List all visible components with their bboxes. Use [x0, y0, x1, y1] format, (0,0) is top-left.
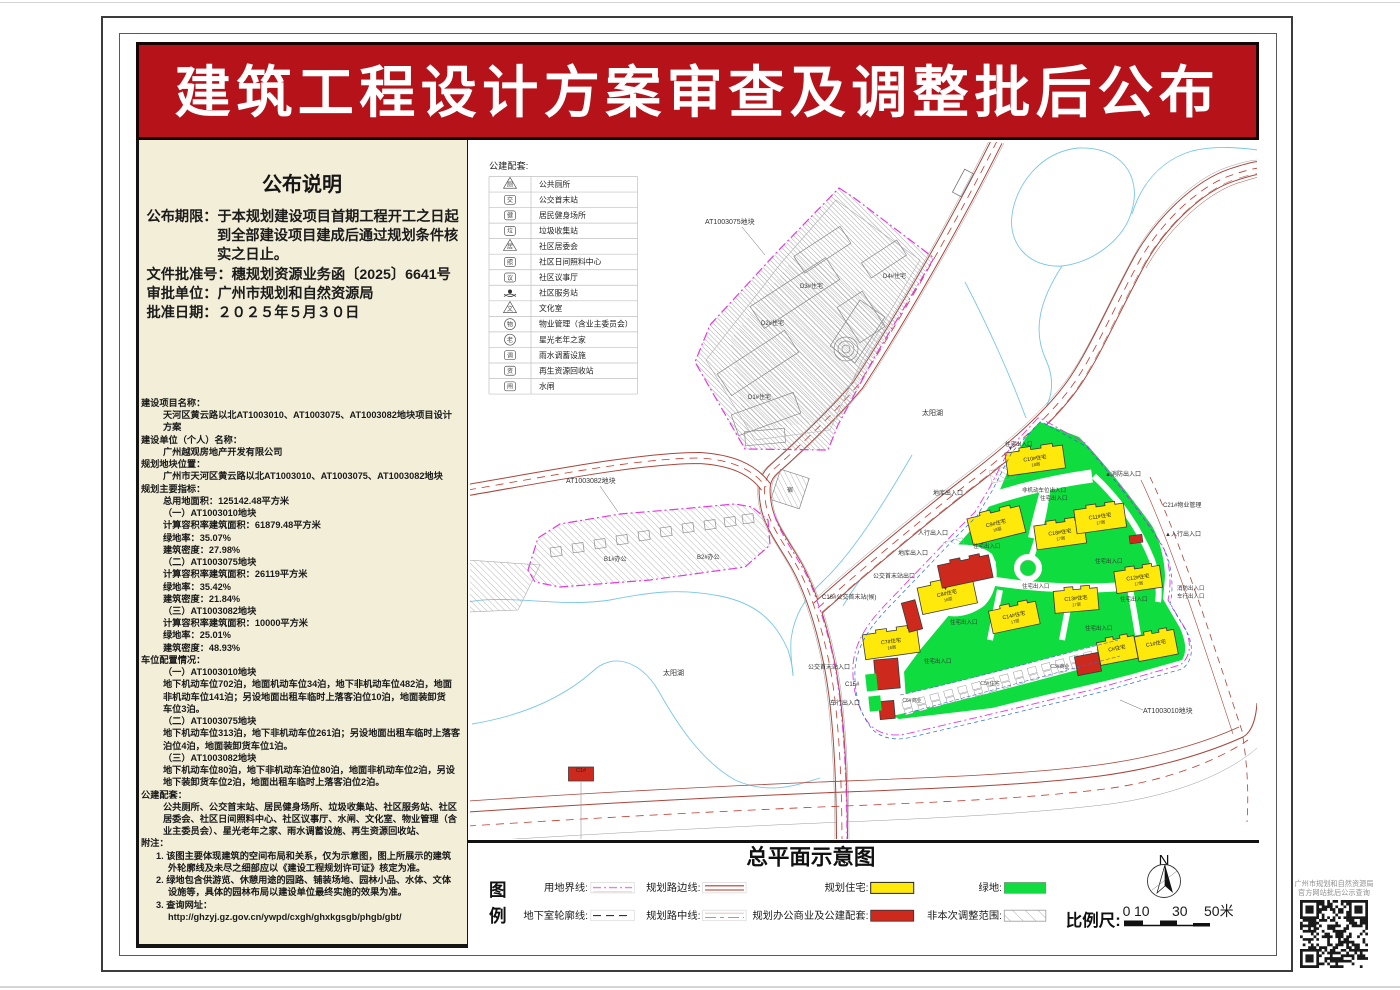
svg-text:住宅出入口: 住宅出入口	[950, 618, 978, 626]
svg-text:议: 议	[507, 274, 513, 282]
svg-text:雨水调蓄设施: 雨水调蓄设施	[539, 350, 586, 360]
svg-text:50米: 50米	[1204, 903, 1234, 919]
svg-text:B2#办公: B2#办公	[697, 553, 720, 561]
svg-text:D3#住宅: D3#住宅	[800, 282, 823, 290]
svg-text:D1#住宅: D1#住宅	[748, 393, 771, 401]
svg-text:比例尺:: 比例尺:	[1066, 910, 1121, 930]
svg-text:住宅出入口: 住宅出入口	[1120, 595, 1148, 603]
svg-text:非本次调整范围:: 非本次调整范围:	[927, 909, 1002, 922]
svg-text:垃圾收集站: 垃圾收集站	[539, 225, 578, 235]
svg-text:居民健身场所: 居民健身场所	[539, 210, 586, 220]
svg-text:AT1003082地块: AT1003082地块	[566, 476, 616, 485]
svg-text:住宅出入口: 住宅出入口	[1095, 557, 1123, 565]
svg-text:AT1003075地块: AT1003075地块	[705, 217, 755, 226]
svg-text:用地界线:: 用地界线:	[544, 881, 588, 894]
svg-text:10: 10	[1134, 903, 1150, 919]
svg-text:照: 照	[507, 259, 513, 266]
svg-text:规划路中线:: 规划路中线:	[646, 909, 700, 922]
svg-text:文: 文	[507, 305, 513, 313]
svg-text:社区居委会: 社区居委会	[539, 241, 578, 251]
svg-text:例: 例	[489, 906, 507, 926]
svg-text:公交首末站入口: 公交首末站入口	[808, 663, 850, 671]
svg-text:C15#: C15#	[845, 682, 860, 688]
svg-text:C5#住宅: C5#住宅	[980, 680, 999, 687]
svg-text:总平面示意图: 总平面示意图	[746, 845, 875, 870]
svg-text:D4#住宅: D4#住宅	[883, 272, 906, 280]
svg-text:车行出入口: 车行出入口	[1177, 592, 1205, 600]
svg-text:规划路边线:: 规划路边线:	[646, 881, 700, 894]
svg-text:B1#办公: B1#办公	[604, 555, 627, 563]
svg-text:再生资源回收站: 再生资源回收站	[539, 365, 594, 375]
svg-text:厕: 厕	[507, 182, 513, 189]
svg-text:▼: ▼	[1008, 446, 1013, 452]
svg-text:消防出入口: 消防出入口	[1177, 584, 1205, 592]
svg-text:图: 图	[489, 880, 507, 900]
svg-text:物: 物	[507, 320, 513, 328]
svg-text:AT1003010地块: AT1003010地块	[1143, 706, 1193, 715]
svg-text:公共厕所: 公共厕所	[539, 179, 570, 189]
svg-text:文化室: 文化室	[539, 303, 563, 313]
svg-text:C3#商业: C3#商业	[1050, 663, 1069, 670]
svg-text:N: N	[1159, 852, 1170, 869]
svg-text:闸: 闸	[507, 383, 513, 391]
svg-text:▼: ▼	[943, 586, 948, 592]
svg-text:C16#公交首末站(候): C16#公交首末站(候)	[822, 593, 876, 601]
svg-text:社区服务站: 社区服务站	[539, 288, 578, 298]
svg-text:0: 0	[1123, 903, 1131, 919]
svg-text:地下室轮廓线:: 地下室轮廓线:	[523, 909, 588, 922]
svg-text:健: 健	[507, 212, 513, 220]
svg-text:老: 老	[507, 336, 513, 344]
svg-text:规划办公商业及公建配套:: 规划办公商业及公建配套:	[752, 909, 868, 922]
svg-text:住宅出入口: 住宅出入口	[924, 657, 952, 665]
svg-text:太阳湖: 太阳湖	[663, 668, 684, 677]
svg-text:30: 30	[1172, 903, 1188, 919]
svg-text:物业管理（含业主委员会）: 物业管理（含业主委员会）	[539, 319, 633, 329]
svg-text:车行出入口: 车行出入口	[830, 699, 860, 707]
svg-text:C6#商业: C6#商业	[902, 697, 921, 704]
svg-text:社区日间照料中心: 社区日间照料中心	[539, 257, 602, 267]
svg-text:人行出入口: 人行出入口	[918, 529, 948, 537]
svg-text:公交首末站出口: 公交首末站出口	[873, 572, 915, 580]
svg-text:公交首末站: 公交首末站	[539, 194, 578, 204]
svg-text:绿地:: 绿地:	[979, 881, 1002, 894]
svg-text:住宅出入口: 住宅出入口	[1022, 582, 1050, 590]
svg-text:地库出入口: 地库出入口	[898, 549, 928, 557]
svg-text:星光老年之家: 星光老年之家	[539, 334, 586, 344]
svg-text:规划住宅:: 规划住宅:	[824, 881, 868, 894]
svg-text:水闸: 水闸	[539, 381, 555, 391]
svg-text:地库出入口: 地库出入口	[933, 489, 963, 497]
svg-text:资: 资	[507, 367, 513, 375]
svg-text:垃: 垃	[507, 227, 513, 235]
svg-text:C21#物业管理: C21#物业管理	[1163, 501, 1201, 509]
svg-text:调: 调	[507, 352, 513, 360]
svg-text:C1#: C1#	[576, 768, 587, 774]
svg-text:住宅出入口: 住宅出入口	[1085, 624, 1113, 632]
svg-text:非机动车位出入口: 非机动车位出入口	[1022, 486, 1066, 494]
svg-text:▲消防出入口: ▲消防出入口	[1105, 470, 1141, 478]
svg-text:社区议事厅: 社区议事厅	[539, 272, 578, 282]
svg-text:居: 居	[507, 244, 513, 251]
svg-text:▲入行出入口: ▲入行出入口	[1165, 530, 1201, 538]
svg-text:公建配套:: 公建配套:	[489, 160, 528, 171]
svg-text:交: 交	[507, 196, 513, 204]
svg-text:D2#住宅: D2#住宅	[761, 319, 784, 327]
svg-text:住宅出入口: 住宅出入口	[1040, 494, 1068, 502]
svg-text:太阳湖: 太阳湖	[922, 408, 943, 417]
svg-text:宿: 宿	[787, 486, 793, 494]
svg-text:住宅出入口: 住宅出入口	[973, 542, 1001, 550]
